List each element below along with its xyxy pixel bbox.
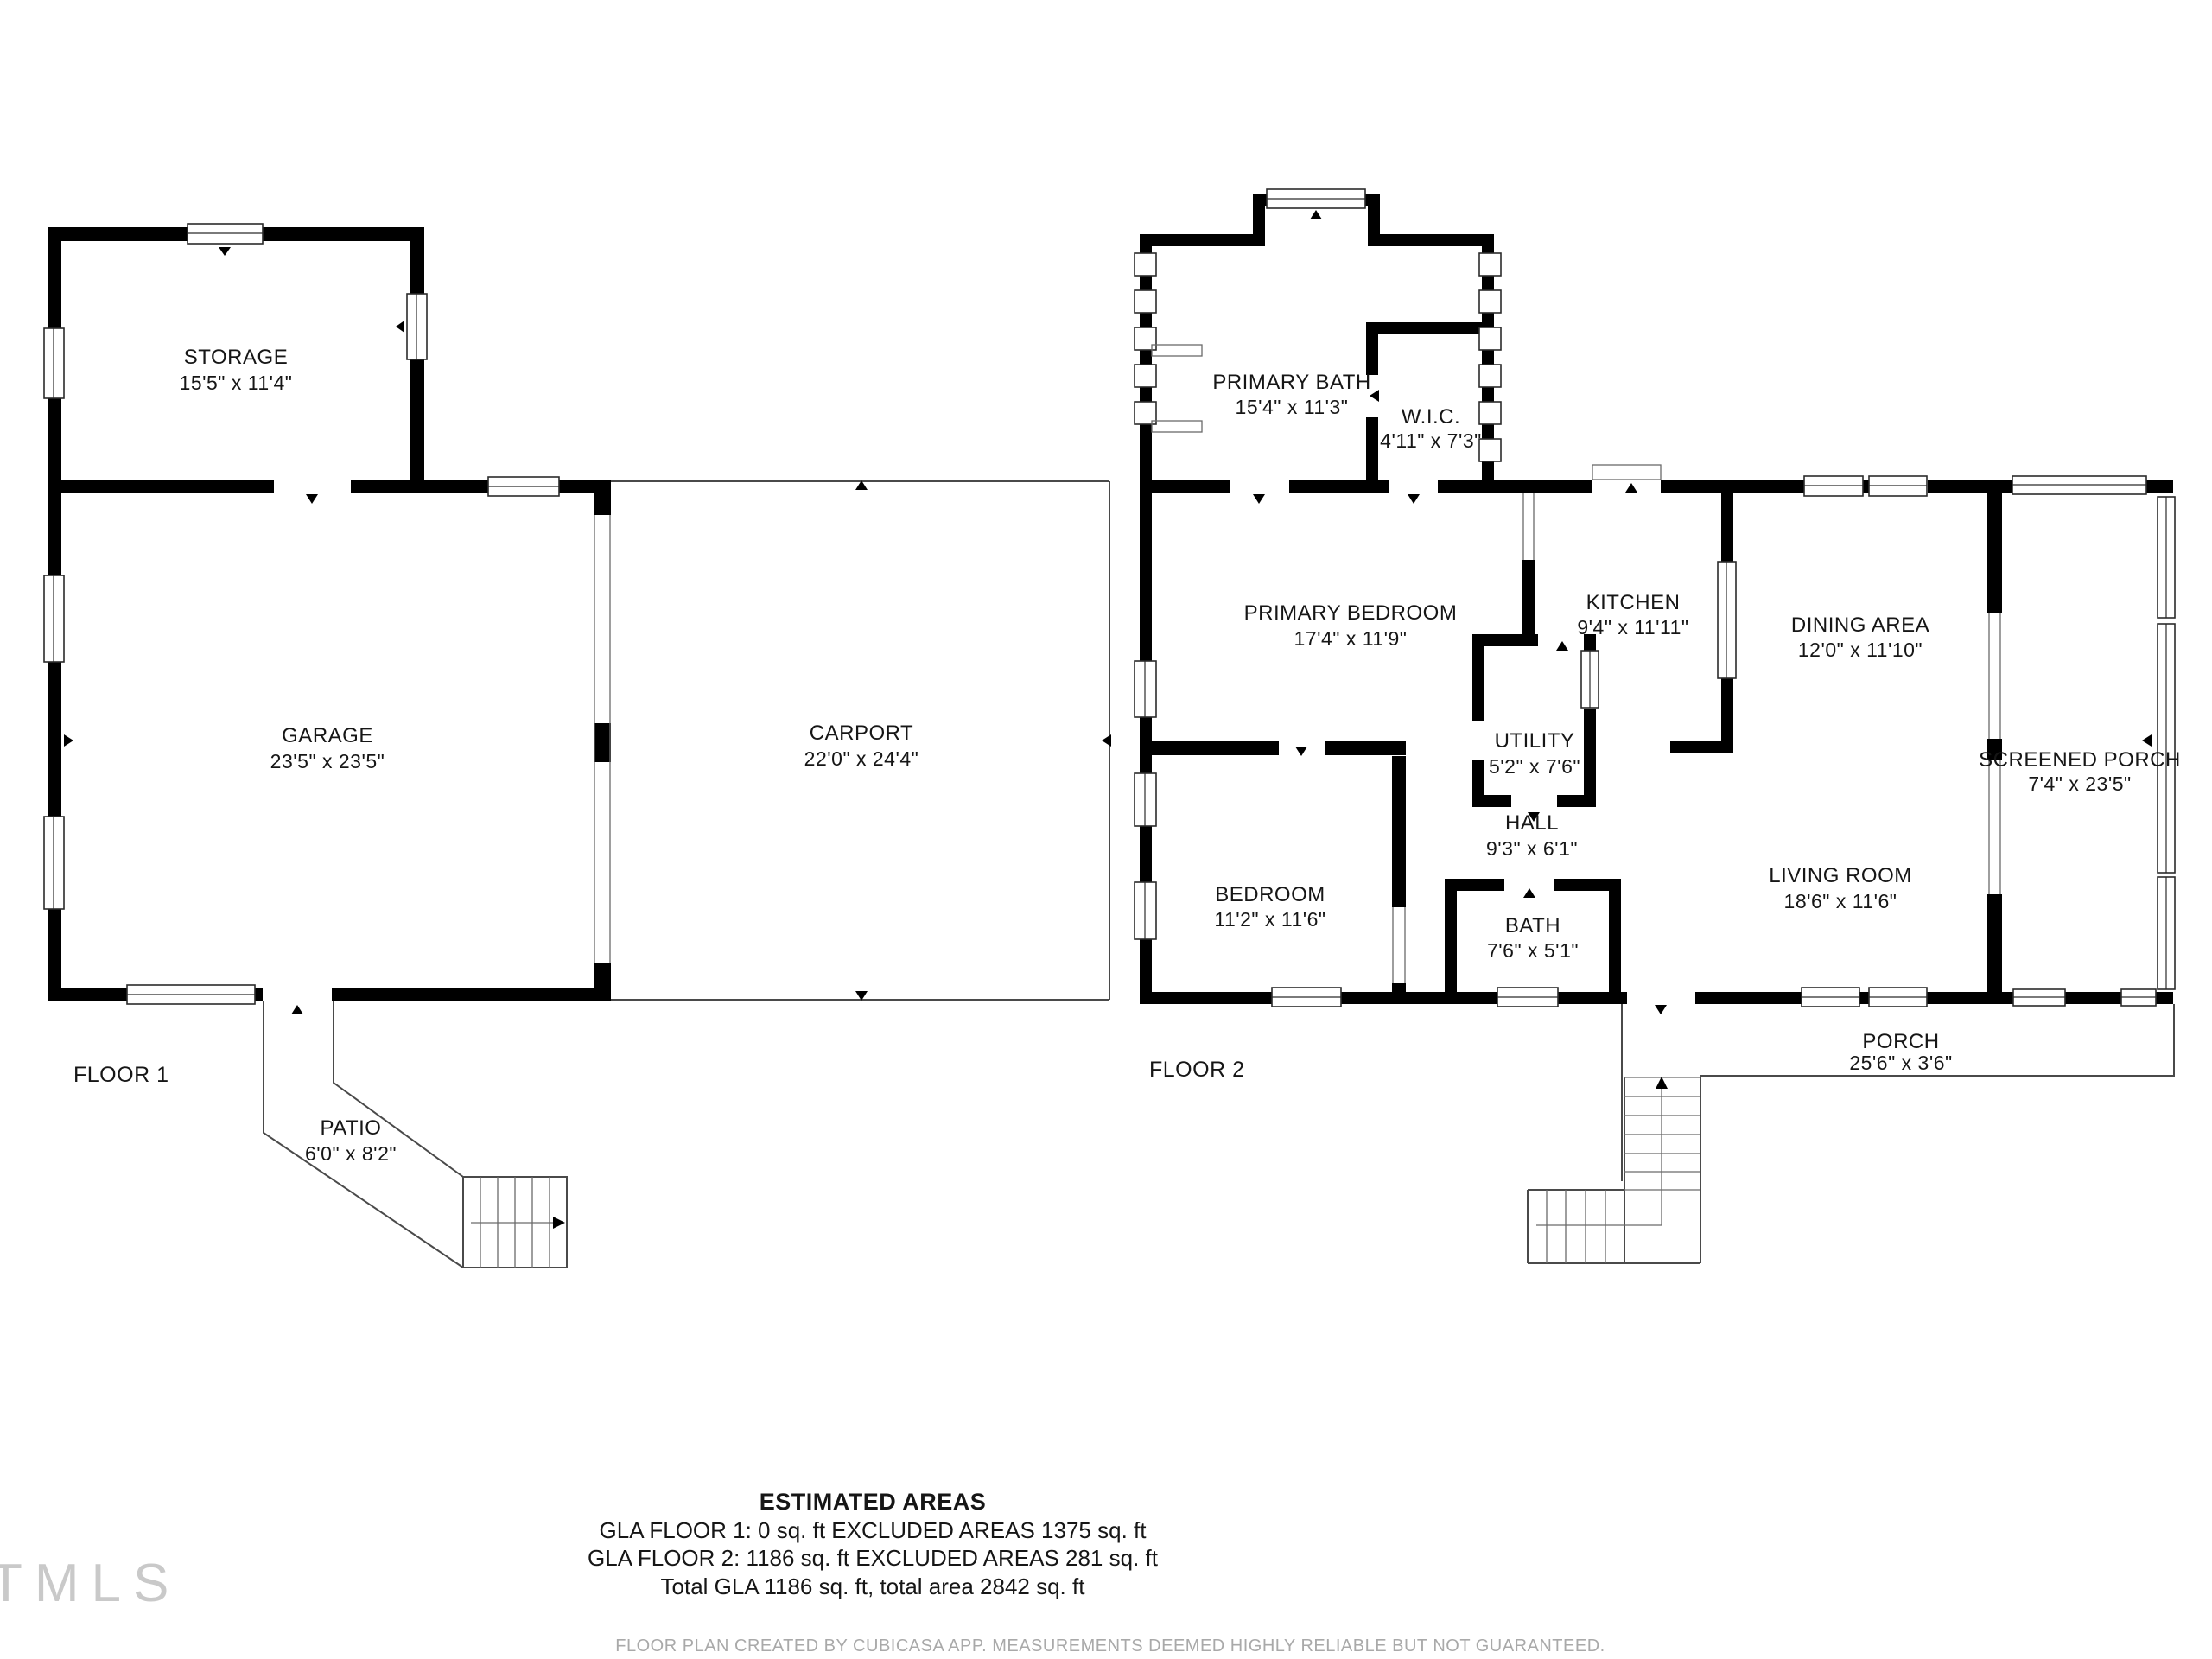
floor2-openings: [1393, 465, 2000, 983]
floor1-label: FLOOR 1: [73, 1063, 168, 1087]
estimated-areas-title: ESTIMATED AREAS: [760, 1489, 987, 1515]
gla-total-line: Total GLA 1186 sq. ft, total area 2842 s…: [661, 1573, 1086, 1599]
utility-room-dims: 5'2" x 7'6": [1489, 755, 1580, 778]
primary-bath-room-name: PRIMARY BATH: [1212, 371, 1370, 394]
bath-room-dims: 7'6" x 5'1": [1487, 939, 1579, 962]
screened-porch-room-dims: 7'4" x 23'5": [2028, 772, 2131, 795]
wic-room-dims: 4'11" x 7'3": [1380, 429, 1482, 452]
gla-floor2-line: GLA FLOOR 2: 1186 sq. ft EXCLUDED AREAS …: [588, 1545, 1159, 1571]
patio-stairs-icon: [463, 1177, 567, 1268]
dining-area-room-name: DINING AREA: [1791, 613, 1929, 637]
tmls-watermark: TMLS: [0, 1554, 181, 1613]
dining-area-room-dims: 12'0" x 11'10": [1798, 639, 1923, 661]
footer-disclaimer: FLOOR PLAN CREATED BY CUBICASA APP. MEAS…: [615, 1637, 1605, 1656]
bedroom-room-dims: 11'2" x 11'6": [1214, 908, 1325, 931]
estimated-areas-block: ESTIMATED AREAS GLA FLOOR 1: 0 sq. ft EX…: [588, 1489, 1159, 1599]
screened-porch-room-name: SCREENED PORCH: [1979, 748, 2181, 772]
kitchen-room-name: KITCHEN: [1586, 591, 1681, 614]
floor2-plan: PRIMARY BATH 15'4" x 11'3" W.I.C. 4'11" …: [1135, 189, 2181, 1263]
bath-room-name: BATH: [1505, 914, 1560, 938]
porch-room-dims: 25'6" x 3'6": [1849, 1052, 1952, 1074]
living-room-room-name: LIVING ROOM: [1769, 864, 1912, 887]
floor-plan-page: STORAGE 15'5" x 11'4" GARAGE 23'5" x 23'…: [0, 0, 2212, 1659]
living-room-room-dims: 18'6" x 11'6": [1784, 890, 1897, 912]
carport-room-dims: 22'0" x 24'4": [804, 747, 919, 770]
primary-bath-room-dims: 15'4" x 11'3": [1236, 396, 1349, 418]
kitchen-room-dims: 9'4" x 11'11": [1577, 616, 1688, 639]
porch-stairs-icon: [1528, 1077, 1700, 1263]
garage-room-name: GARAGE: [282, 724, 373, 747]
gla-floor1-line: GLA FLOOR 1: 0 sq. ft EXCLUDED AREAS 137…: [600, 1517, 1147, 1543]
wic-room-name: W.I.C.: [1402, 405, 1460, 429]
storage-room-name: STORAGE: [184, 346, 288, 369]
floor1-windows: [44, 224, 559, 1004]
floor-plan-canvas: STORAGE 15'5" x 11'4" GARAGE 23'5" x 23'…: [0, 0, 2212, 1659]
hall-room-name: HALL: [1505, 811, 1559, 835]
primary-bedroom-room-name: PRIMARY BEDROOM: [1244, 601, 1458, 625]
primary-bedroom-room-dims: 17'4" x 11'9": [1294, 627, 1408, 650]
patio-room-dims: 6'0" x 8'2": [305, 1142, 397, 1165]
floor1-walls: [48, 227, 611, 1001]
hall-room-dims: 9'3" x 6'1": [1486, 837, 1578, 860]
storage-room-dims: 15'5" x 11'4": [180, 372, 293, 394]
porch-room-name: PORCH: [1862, 1030, 1939, 1053]
primary-bath-fixtures: [1152, 345, 1202, 432]
floor1-plan: STORAGE 15'5" x 11'4" GARAGE 23'5" x 23'…: [44, 224, 1111, 1268]
floor2-label: FLOOR 2: [1149, 1058, 1244, 1082]
carport-room-name: CARPORT: [810, 721, 913, 745]
utility-room-name: UTILITY: [1495, 729, 1575, 753]
patio-room-name: PATIO: [321, 1116, 382, 1140]
bedroom-room-name: BEDROOM: [1215, 883, 1325, 906]
garage-room-dims: 23'5" x 23'5": [270, 750, 385, 772]
